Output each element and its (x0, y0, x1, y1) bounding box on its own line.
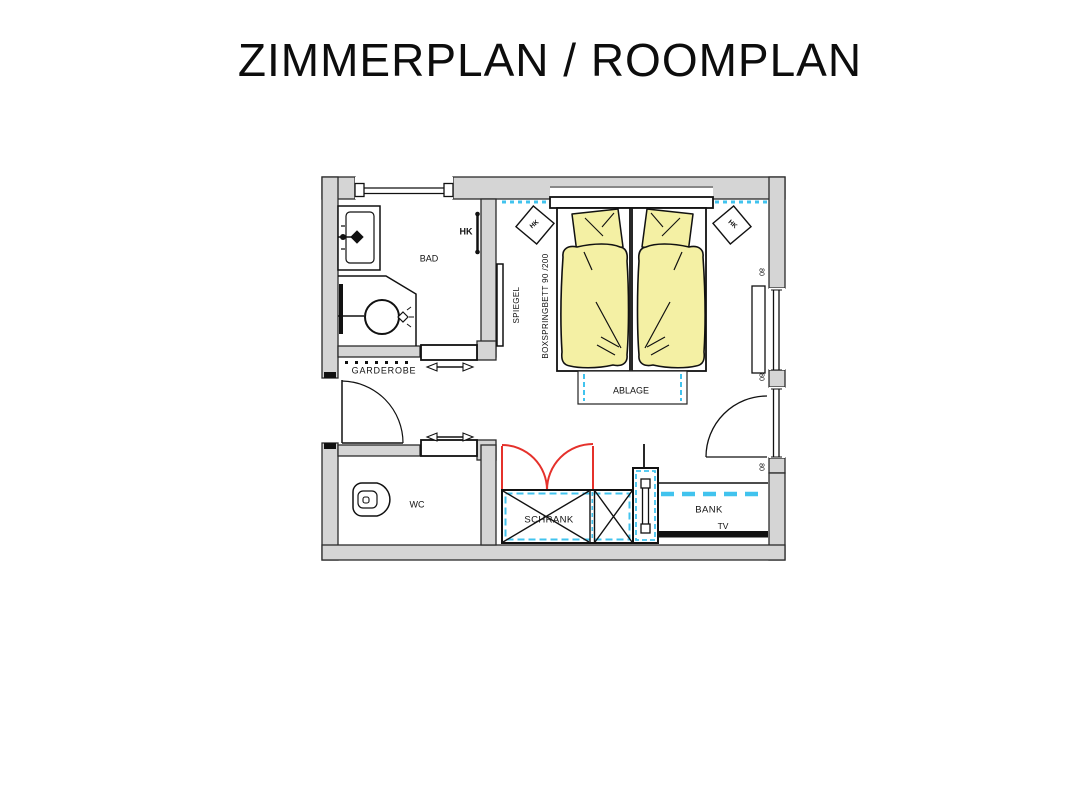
mirror (497, 264, 503, 346)
wall-bottom (322, 545, 785, 560)
room-label-bad: BAD (420, 255, 439, 264)
toilet (353, 483, 390, 516)
radiator-label-bathroom: HK (460, 228, 473, 237)
entry-door (324, 372, 403, 449)
shower-glass (339, 284, 343, 334)
bed-label: BOXSPRINGBETT 90 /200 (542, 253, 550, 358)
bathroom-sliding-door (421, 345, 477, 371)
wall-left-lower (322, 443, 338, 560)
closet-label: SCHRANK (524, 515, 573, 525)
wall-left-upper (322, 177, 338, 378)
wall-right-mullion-2 (769, 458, 785, 473)
bathroom-window (355, 177, 453, 199)
duvet-left (561, 244, 629, 368)
tv-board (657, 531, 768, 538)
shelf-label: ABLAGE (613, 387, 649, 396)
garderobe-label: GARDEROBE (352, 367, 417, 376)
wall-right-upper (769, 177, 785, 288)
luggage-rack (633, 444, 658, 543)
floorplan-drawing (0, 0, 1073, 800)
balcony-door (706, 396, 767, 457)
room-label-wc: WC (410, 501, 425, 510)
mirror-label: SPIEGEL (513, 286, 521, 323)
shower (338, 276, 416, 346)
window-dim-label-3: 80 (758, 463, 765, 471)
wardrobe-doors (502, 444, 593, 490)
garderobe-hooks (345, 361, 408, 364)
window-dim-label-2: 80 (758, 373, 765, 381)
beds (550, 197, 713, 371)
page-title: ZIMMERPLAN / ROOMPLAN (238, 37, 862, 83)
roomplan-page: ZIMMERPLAN / ROOMPLAN BAD HK GARDEROBE W… (0, 0, 1073, 800)
wall-bath-bedroom-divider (481, 199, 496, 357)
wall-right-mullion-1 (769, 370, 785, 387)
wall-bath-corner-block (477, 341, 496, 360)
wall-wc-top (338, 445, 420, 456)
wall-bath-bottom (338, 346, 420, 357)
wall-wc-right (481, 445, 496, 545)
wc-sliding-door (421, 433, 477, 456)
duvet-right (638, 244, 706, 368)
sink-vanity (338, 206, 380, 270)
bathroom-radiator (475, 212, 480, 255)
tv-label: TV (718, 522, 729, 531)
curtain-box (752, 286, 765, 373)
bench-label: BANK (695, 505, 722, 515)
headboard (550, 197, 713, 208)
window-dim-label-1: 80 (758, 268, 765, 276)
